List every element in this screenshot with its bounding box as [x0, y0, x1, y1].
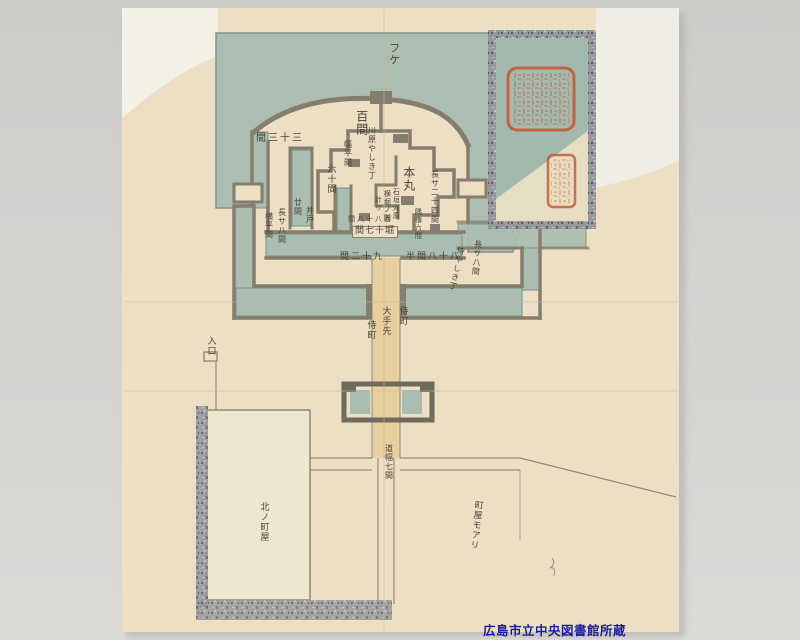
map-photo	[0, 0, 800, 640]
speckle-strip-bottom	[196, 600, 392, 620]
main-road	[372, 258, 400, 458]
screenshot-root: フケ 間三十三 百間 幅平間 川原やしき丁 六十間 廿間 井戸 長サ八間 横平間…	[0, 0, 800, 640]
speckle-strip-left	[196, 406, 208, 608]
library-seal-small	[548, 155, 575, 207]
library-seal-large	[508, 68, 574, 130]
collection-caption: 広島市立中央図書館所蔵	[483, 620, 626, 639]
